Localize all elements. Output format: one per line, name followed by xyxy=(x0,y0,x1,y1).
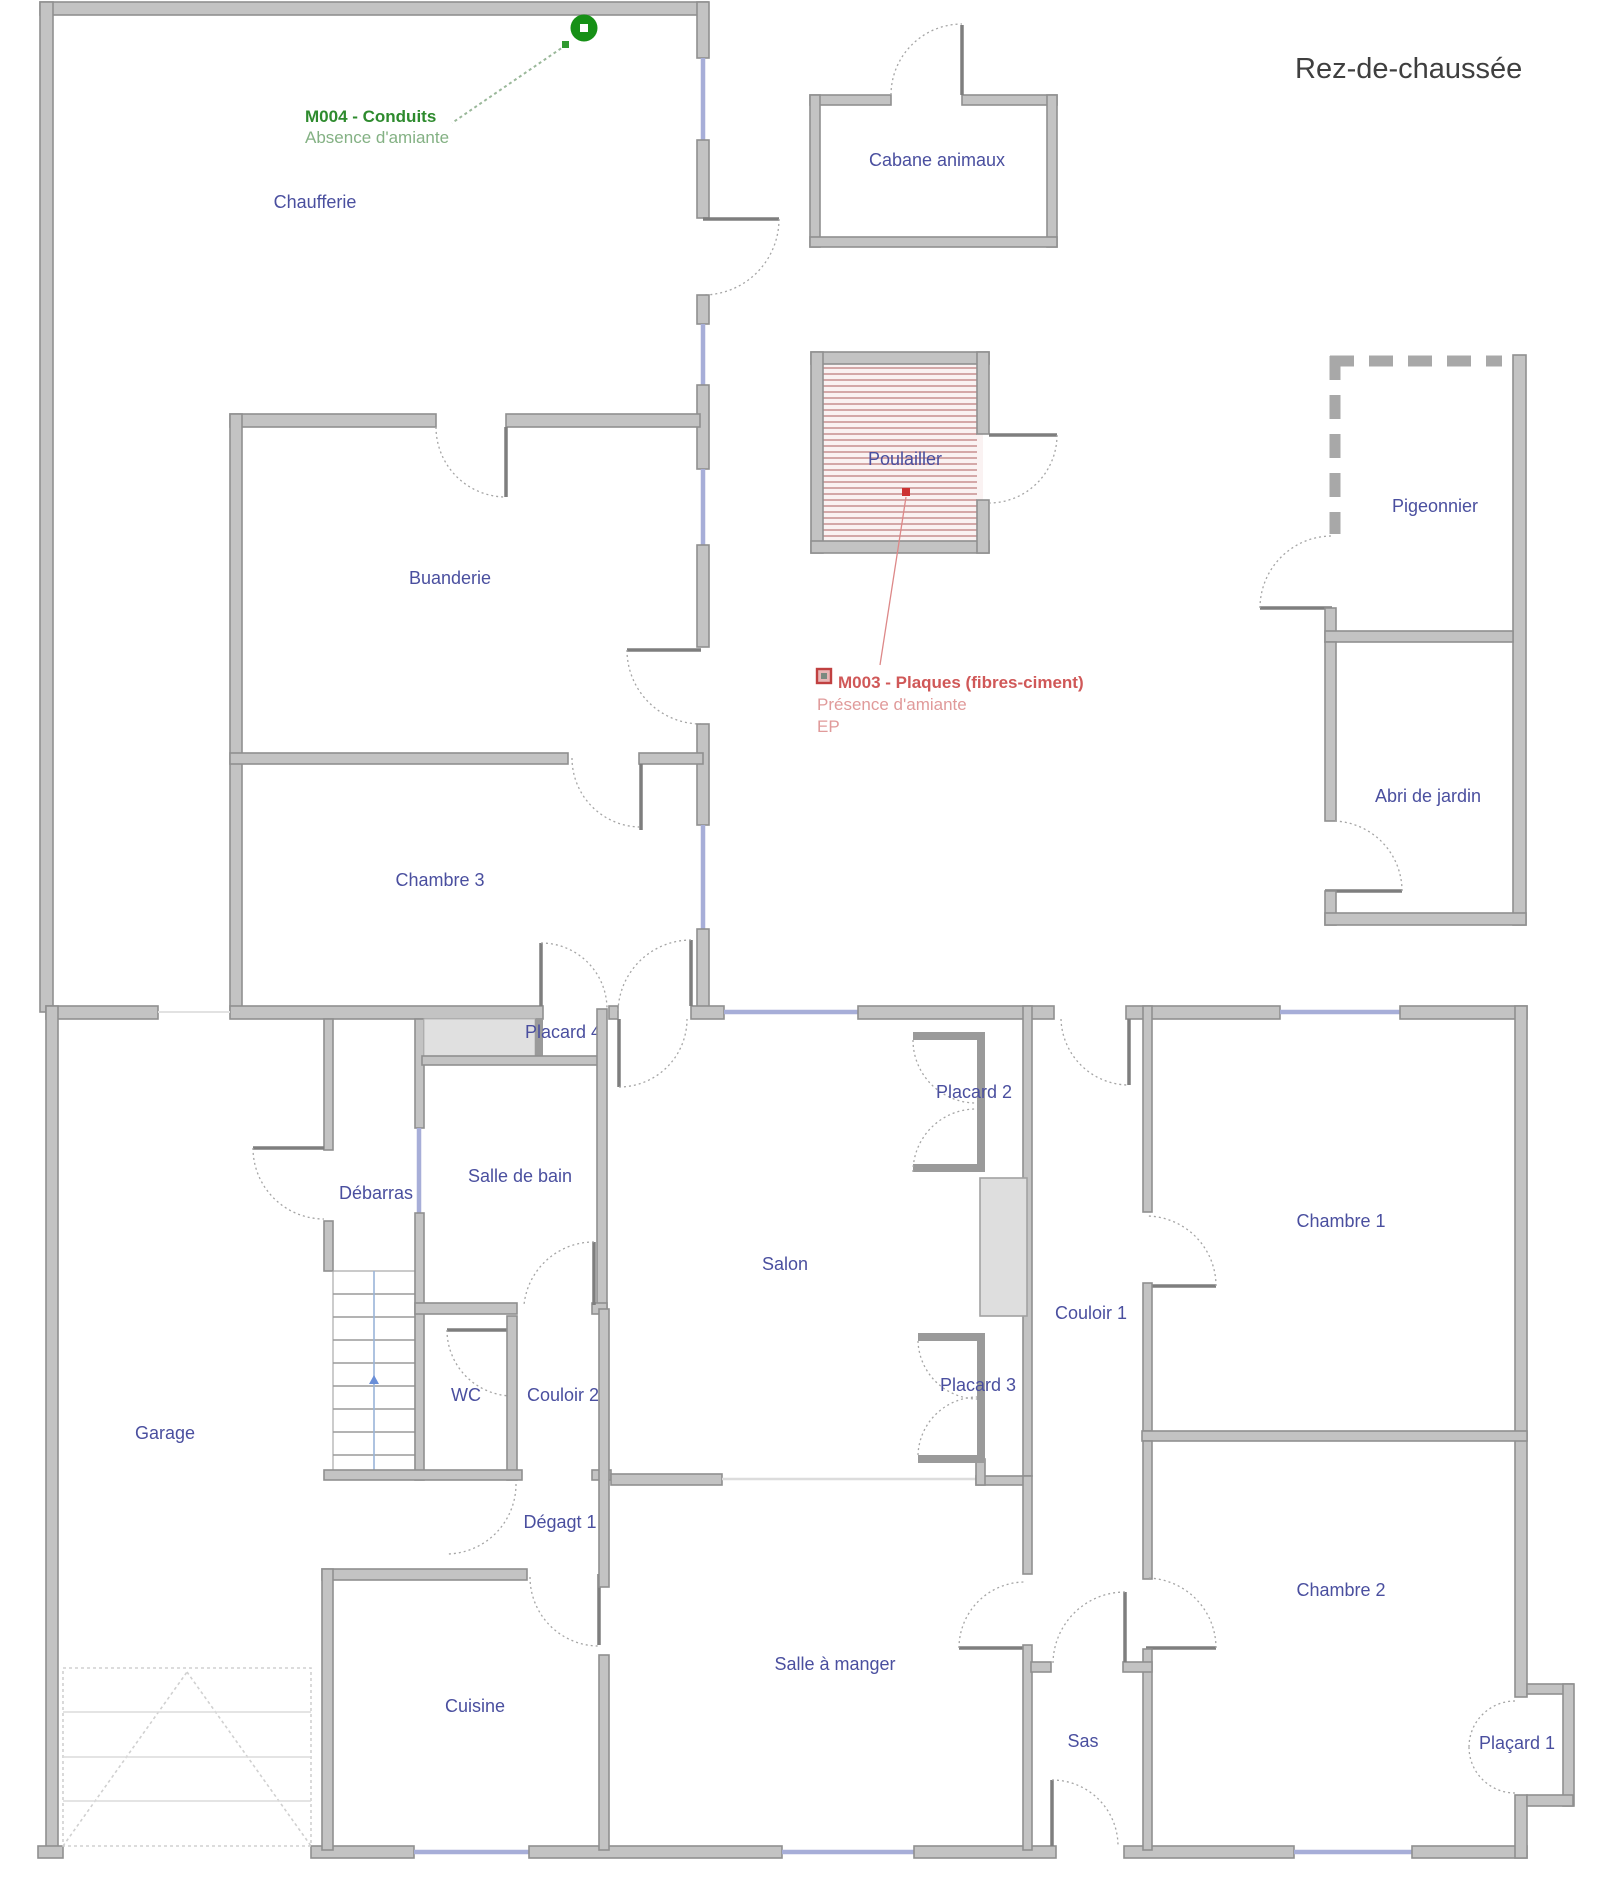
svg-text:Buanderie: Buanderie xyxy=(409,568,491,588)
svg-text:Salle de bain: Salle de bain xyxy=(468,1166,572,1186)
svg-text:Pigeonnier: Pigeonnier xyxy=(1392,496,1478,516)
svg-text:Chaufferie: Chaufferie xyxy=(274,192,357,212)
svg-text:Plaçard 1: Plaçard 1 xyxy=(1479,1733,1555,1753)
svg-text:Placard 2: Placard 2 xyxy=(936,1082,1012,1102)
svg-text:Présence d'amiante: Présence d'amiante xyxy=(817,695,967,714)
svg-text:Chambre 3: Chambre 3 xyxy=(395,870,484,890)
svg-text:Débarras: Débarras xyxy=(339,1183,413,1203)
svg-text:Couloir 2: Couloir 2 xyxy=(527,1385,599,1405)
svg-text:Abri de jardin: Abri de jardin xyxy=(1375,786,1481,806)
svg-text:Cuisine: Cuisine xyxy=(445,1696,505,1716)
svg-text:Couloir 1: Couloir 1 xyxy=(1055,1303,1127,1323)
svg-text:Absence d'amiante: Absence d'amiante xyxy=(305,128,449,147)
svg-text:Rez-de-chaussée: Rez-de-chaussée xyxy=(1295,53,1522,85)
svg-text:EP: EP xyxy=(817,717,840,736)
svg-text:Placard 4: Placard 4 xyxy=(525,1022,601,1042)
svg-text:Chambre 1: Chambre 1 xyxy=(1296,1211,1385,1231)
svg-text:WC: WC xyxy=(451,1385,481,1405)
svg-text:M003 - Plaques (fibres-ciment): M003 - Plaques (fibres-ciment) xyxy=(838,673,1084,692)
svg-text:Garage: Garage xyxy=(135,1423,195,1443)
svg-text:Chambre 2: Chambre 2 xyxy=(1296,1580,1385,1600)
svg-text:Placard 3: Placard 3 xyxy=(940,1375,1016,1395)
svg-text:Poulailler: Poulailler xyxy=(868,449,942,469)
svg-text:Cabane animaux: Cabane animaux xyxy=(869,150,1005,170)
svg-text:Salon: Salon xyxy=(762,1254,808,1274)
svg-text:Dégagt 1: Dégagt 1 xyxy=(523,1512,596,1532)
svg-text:Sas: Sas xyxy=(1067,1731,1098,1751)
svg-text:Salle à manger: Salle à manger xyxy=(774,1654,895,1674)
svg-text:M004 - Conduits: M004 - Conduits xyxy=(305,107,436,126)
